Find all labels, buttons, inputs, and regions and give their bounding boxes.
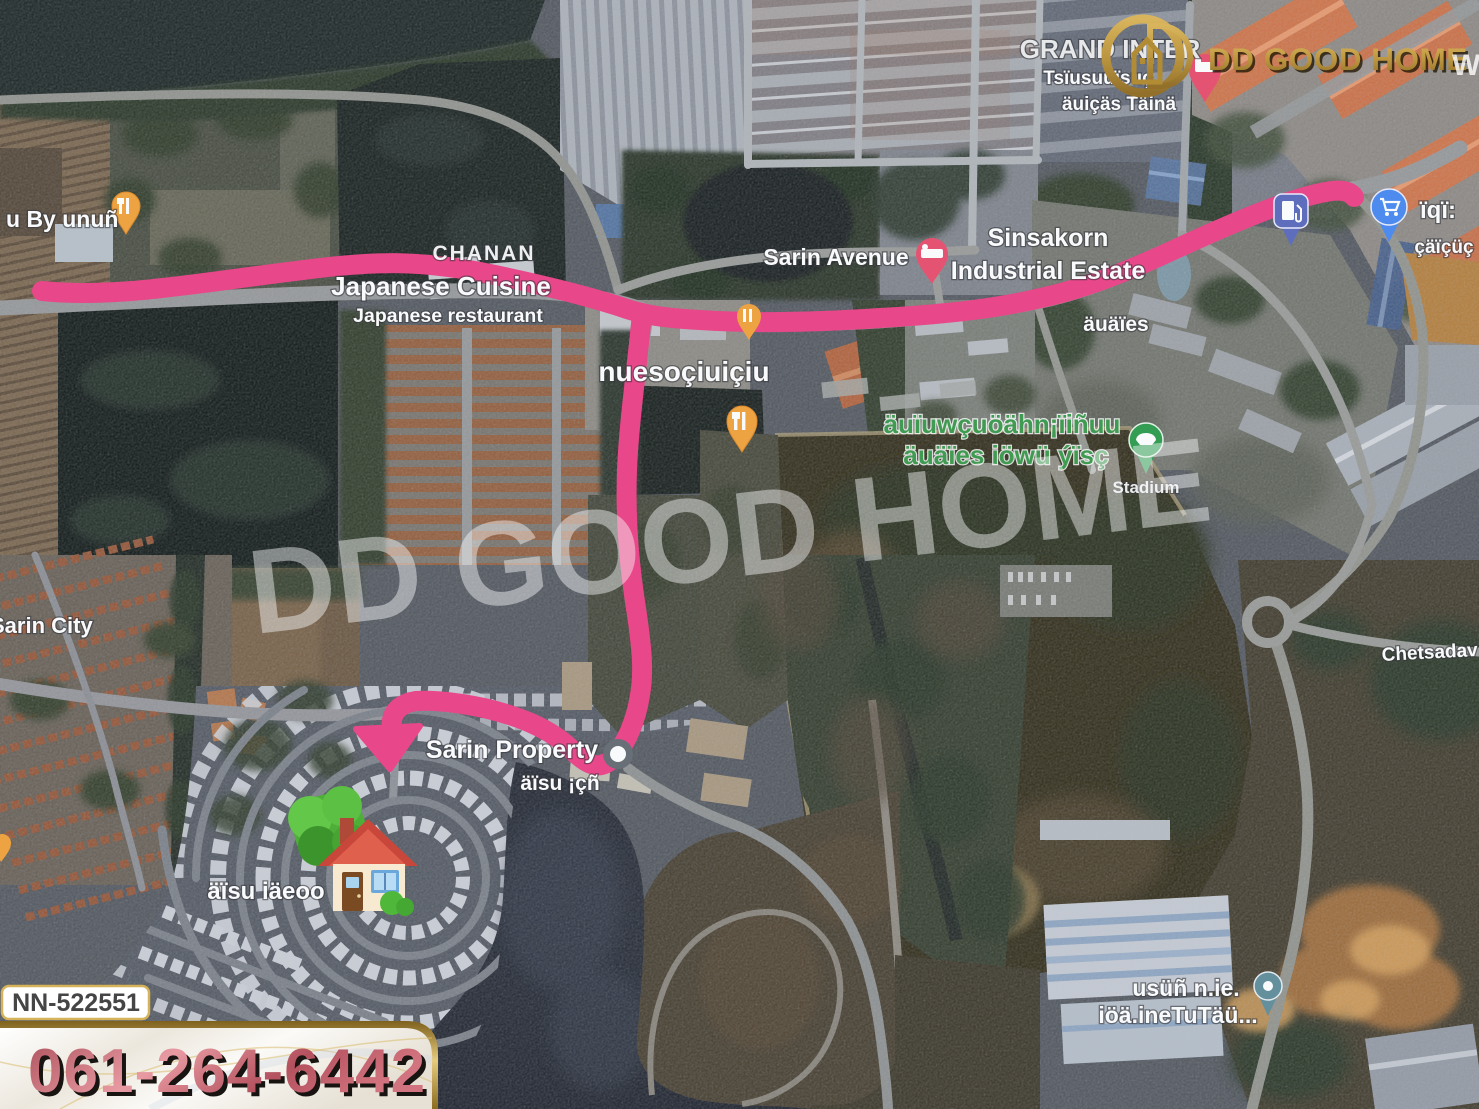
svg-text:W: W: [1452, 49, 1479, 82]
svg-text:DD GOOD HOME: DD GOOD HOME: [1208, 41, 1468, 77]
svg-text:NN-522551: NN-522551: [12, 989, 140, 1017]
svg-text:061-264-6442: 061-264-6442: [28, 1037, 426, 1106]
